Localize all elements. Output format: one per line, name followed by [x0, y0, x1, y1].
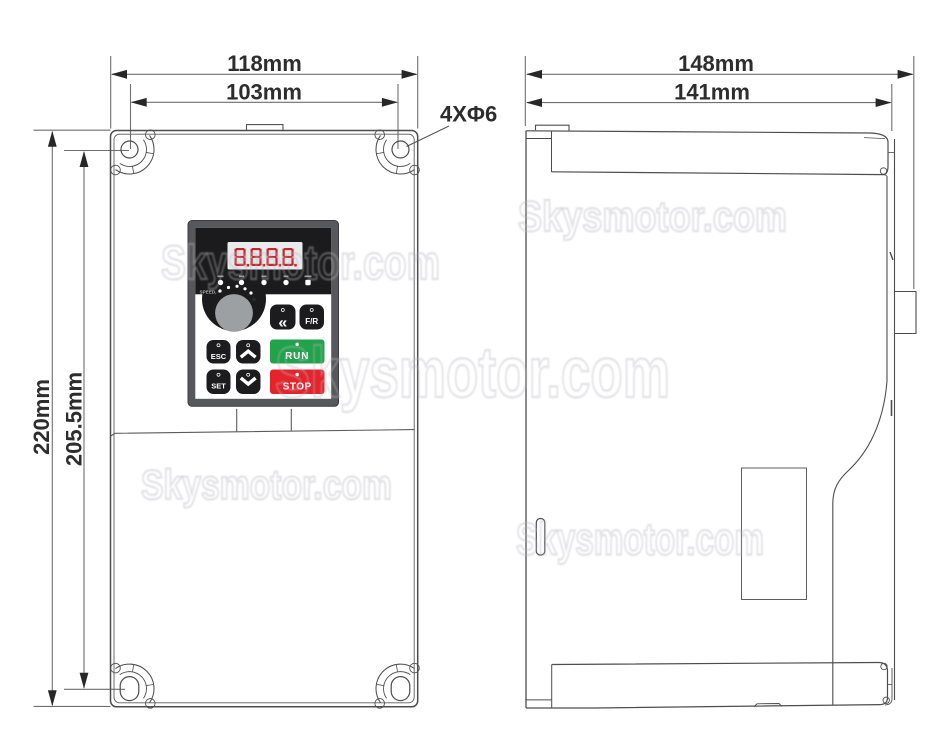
svg-text:Skysmotor.com: Skysmotor.com — [516, 514, 764, 565]
svg-text:220mm: 220mm — [29, 379, 54, 455]
svg-text:Skysmotor.com: Skysmotor.com — [518, 193, 787, 241]
svg-text:Skysmotor.com: Skysmotor.com — [161, 237, 440, 290]
svg-text:F/R: F/R — [305, 317, 318, 326]
svg-text:148mm: 148mm — [678, 51, 754, 76]
svg-text:Skysmotor.com: Skysmotor.com — [141, 461, 392, 508]
svg-text:4XΦ6: 4XΦ6 — [440, 102, 497, 127]
svg-text:141mm: 141mm — [674, 80, 750, 105]
svg-text:118mm: 118mm — [227, 51, 302, 76]
svg-text:«: « — [278, 315, 287, 332]
svg-text:205.5mm: 205.5mm — [62, 372, 87, 466]
svg-text:SPEED, +: SPEED, + — [200, 290, 221, 295]
svg-text:SET: SET — [211, 382, 226, 391]
svg-text:ESC: ESC — [211, 352, 227, 361]
svg-text:103mm: 103mm — [226, 79, 302, 104]
svg-text:Skysmotor.com: Skysmotor.com — [275, 334, 670, 413]
